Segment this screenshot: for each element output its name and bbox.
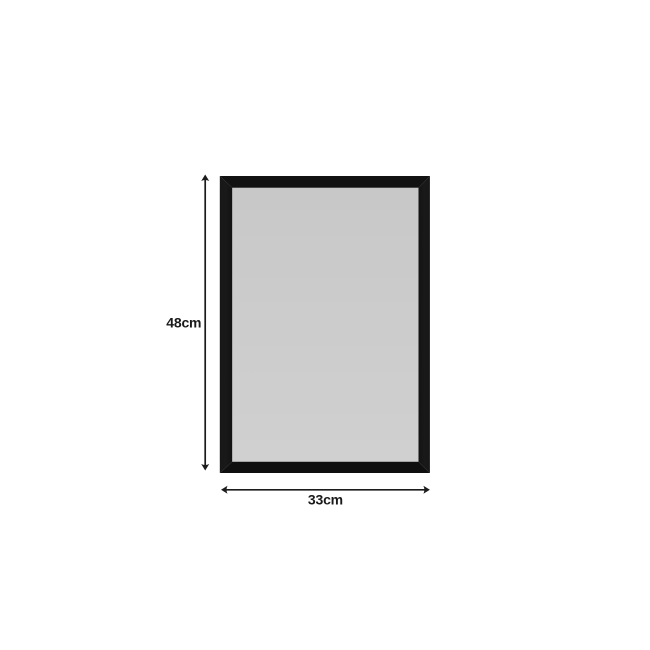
svg-text:33cm: 33cm: [308, 492, 343, 508]
svg-text:48cm: 48cm: [166, 315, 201, 331]
